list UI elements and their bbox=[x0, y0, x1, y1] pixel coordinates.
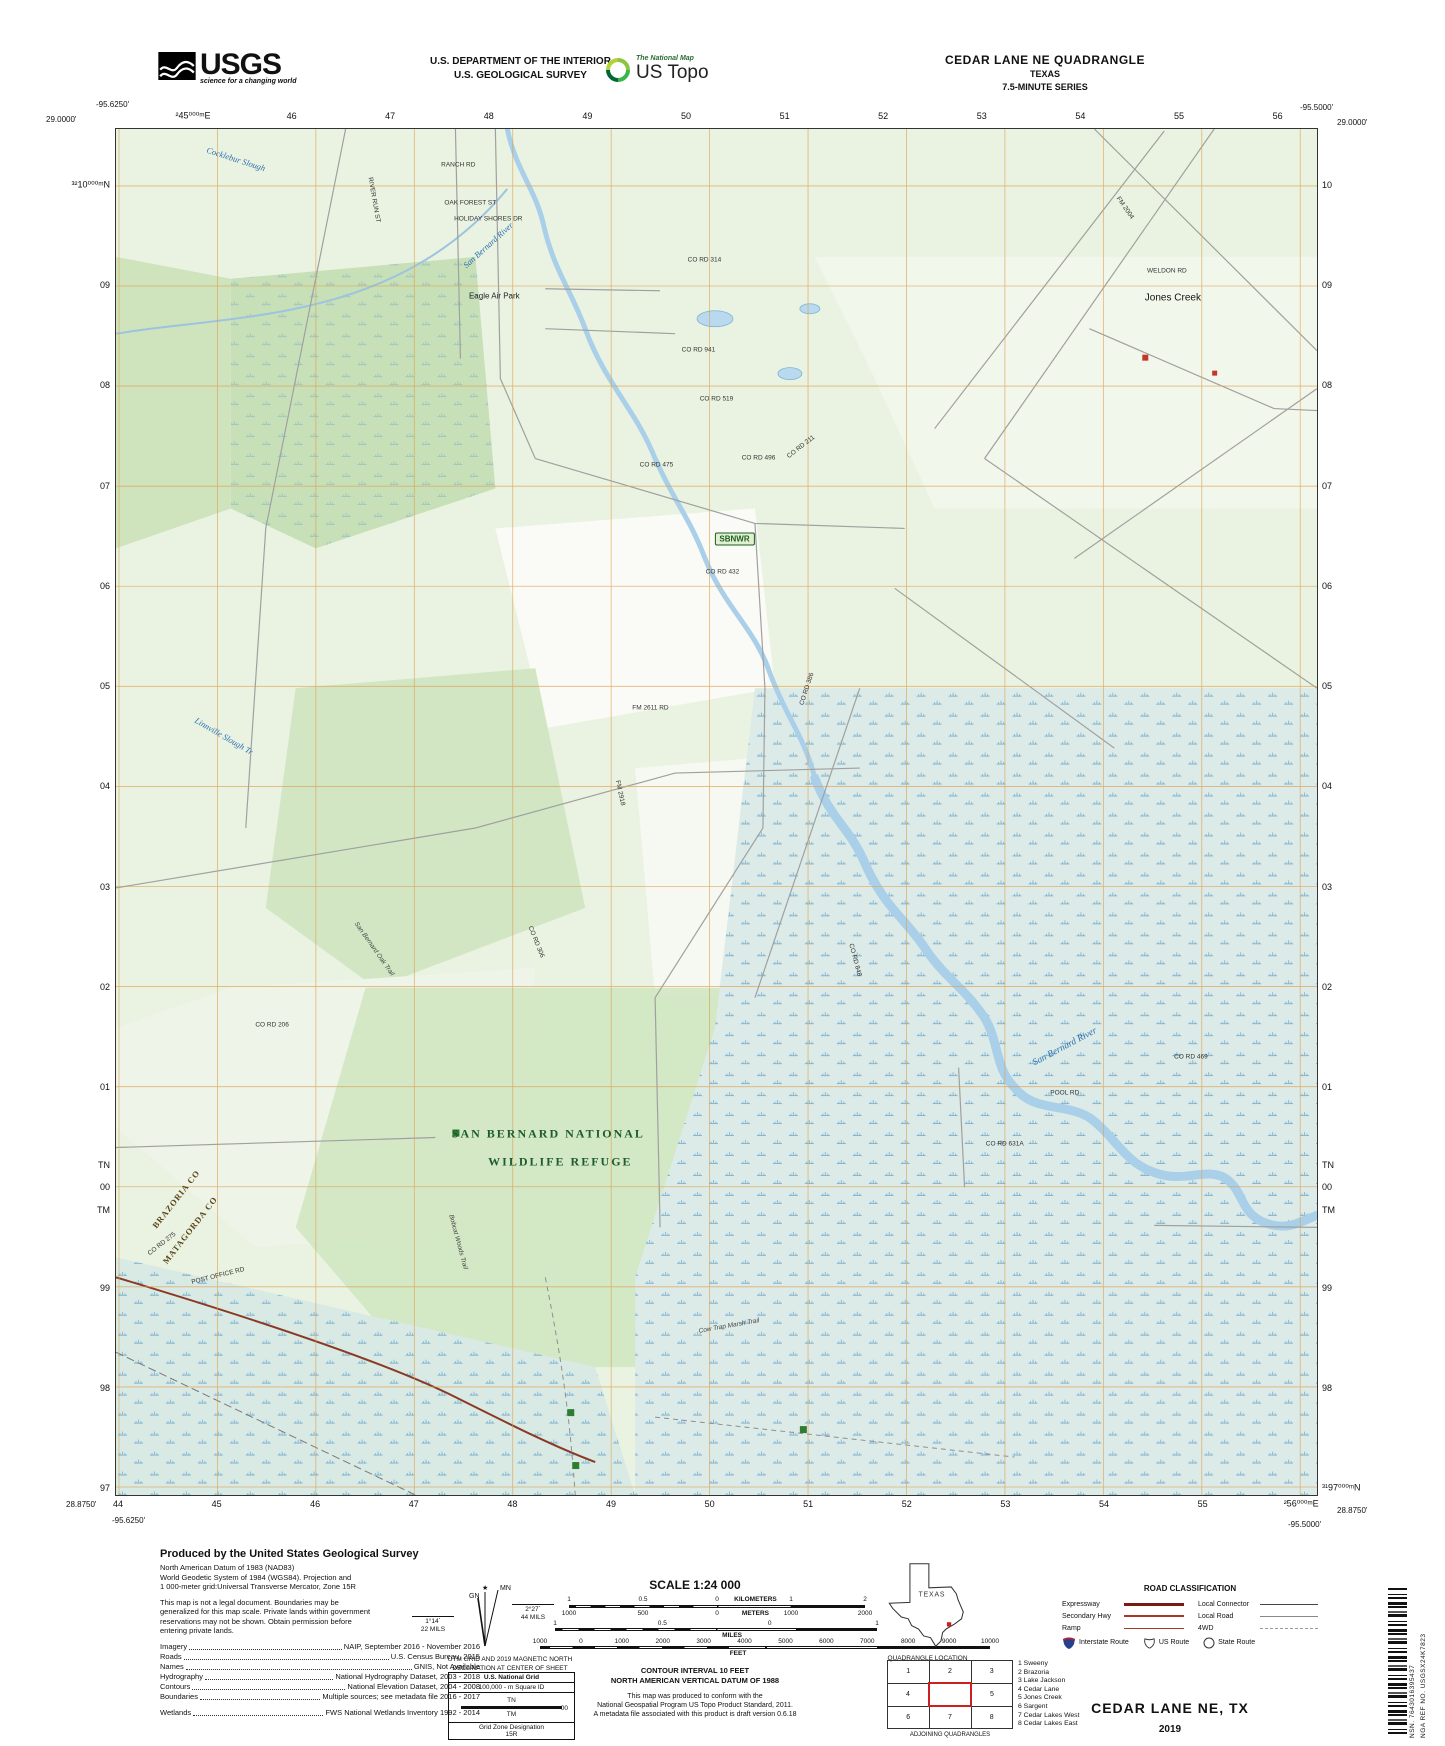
grid-coordinate-label: ²56⁰⁰⁰ᵐE bbox=[1284, 1499, 1319, 1510]
national-map-icon bbox=[605, 57, 631, 83]
map-label: FM 2918 bbox=[614, 780, 626, 807]
adj-cell: 8 bbox=[971, 1706, 1013, 1729]
source-row: BoundariesMultiple sources; see metadata… bbox=[160, 1692, 480, 1702]
map-label: Eagle Air Park bbox=[469, 291, 520, 300]
grid-coordinate-label: 06 bbox=[100, 581, 110, 591]
svg-text:★: ★ bbox=[482, 1584, 488, 1592]
adj-cell-center bbox=[929, 1683, 971, 1706]
usgs-topo-sheet: USGS science for a changing world U.S. D… bbox=[0, 0, 1445, 1746]
map-label: RANCH RD bbox=[441, 161, 475, 168]
sheet-title: CEDAR LANE NE, TX bbox=[1040, 1700, 1300, 1716]
map-label: Cocklebur Slough bbox=[205, 145, 266, 173]
usng-gzd: Grid Zone Designation15R bbox=[449, 1722, 574, 1739]
source-row: HydrographyNational Hydrography Dataset,… bbox=[160, 1672, 480, 1682]
corner-coord-tr-lon: -95.5000' bbox=[1300, 103, 1333, 112]
map-label: San Bernard Oak Trail bbox=[353, 920, 396, 977]
grid-coordinate-label: 51 bbox=[803, 1499, 813, 1509]
scale-tick: 0 bbox=[715, 1596, 719, 1603]
ramp-sample bbox=[1124, 1628, 1184, 1629]
scale-tick: 500 bbox=[638, 1610, 649, 1617]
grid-coordinate-label: 08 bbox=[100, 380, 110, 390]
scale-tick: 0.5 bbox=[638, 1596, 647, 1603]
map-label: CO RD 496 bbox=[742, 455, 776, 462]
grid-coordinate-label: 51 bbox=[780, 111, 790, 121]
mn-declination: 2°27´44 MILS bbox=[512, 1604, 554, 1622]
adj-cell: 7 bbox=[929, 1706, 971, 1729]
scale-tick: 0 bbox=[579, 1638, 583, 1645]
grid-coordinate-label: 56 bbox=[1273, 111, 1283, 121]
grid-coordinate-label: 05 bbox=[100, 681, 110, 691]
scale-tick: 3000 bbox=[696, 1638, 710, 1645]
dept-line2: U.S. GEOLOGICAL SURVEY bbox=[430, 69, 611, 83]
state-locator: TEXAS QUADRANGLE LOCATION bbox=[855, 1562, 1000, 1662]
grid-coordinate-label: 09 bbox=[1322, 280, 1332, 290]
map-label: SBNWR bbox=[714, 532, 754, 545]
expressway-sample bbox=[1124, 1603, 1184, 1606]
map-label: CO RD 469 bbox=[1174, 1053, 1208, 1060]
adj-cell: 3 bbox=[971, 1661, 1013, 1684]
grid-coordinate-label: 02 bbox=[100, 982, 110, 992]
grid-coordinate-label: 03 bbox=[100, 882, 110, 892]
grid-coordinate-label: 03 bbox=[1322, 882, 1332, 892]
grid-coordinate-label: 99 bbox=[1322, 1283, 1332, 1293]
scale-tick: 0 bbox=[768, 1620, 772, 1627]
map-label: San Bernard River bbox=[1031, 1026, 1098, 1068]
map-label: CO RD 314 bbox=[688, 257, 722, 264]
quad-title: CEDAR LANE NE QUADRANGLE bbox=[880, 53, 1210, 67]
nga-ref-number: NGA REF NO. USGSX24K7823 bbox=[1420, 1588, 1427, 1738]
map-labels-layer: Cocklebur SloughSan Bernard RiverEagle A… bbox=[116, 129, 1317, 1495]
road-classification-title: ROAD CLASSIFICATION bbox=[1060, 1584, 1320, 1593]
usgs-wordmark: USGS bbox=[200, 52, 296, 78]
barcode bbox=[1388, 1588, 1407, 1734]
datum-line: World Geodetic System of 1984 (WGS84). P… bbox=[160, 1573, 490, 1583]
source-row: ContoursNational Elevation Dataset, 2004… bbox=[160, 1682, 480, 1692]
grid-coordinate-label: 04 bbox=[100, 781, 110, 791]
grid-coordinate-label: 46 bbox=[287, 111, 297, 121]
scalebar-kilometers: 10.5012 KILOMETERS 1000500010002000 METE… bbox=[569, 1596, 865, 1622]
grid-coordinate-label: 01 bbox=[1322, 1082, 1332, 1092]
adj-cell: 6 bbox=[888, 1706, 930, 1729]
road-classification: Expressway Local Connector Secondary Hwy… bbox=[1062, 1598, 1324, 1634]
grid-coordinate-label: 50 bbox=[705, 1499, 715, 1509]
scale-tick: 4000 bbox=[737, 1638, 751, 1645]
dept-line1: U.S. DEPARTMENT OF THE INTERIOR bbox=[430, 55, 611, 69]
map-label: OAK FOREST ST bbox=[444, 199, 496, 206]
ustopo-logo: The National Map US Topo bbox=[605, 55, 709, 84]
map-label: HOLIDAY SHORES DR bbox=[454, 216, 522, 223]
adjoining-names: 1 Sweeny 2 Brazoria 3 Lake Jackson 4 Ced… bbox=[1018, 1660, 1079, 1729]
local-road-sample bbox=[1260, 1616, 1318, 1617]
scale-tick: 1000 bbox=[533, 1638, 547, 1645]
grid-coordinate-label: 10 bbox=[1322, 180, 1332, 190]
grid-coordinate-label: 46 bbox=[310, 1499, 320, 1509]
declination-diagram: ★ MN GN 1°14´22 MILS 2°27´44 MILS bbox=[420, 1582, 550, 1654]
usgs-logo: USGS science for a changing world bbox=[158, 52, 296, 85]
grid-coordinate-label: 98 bbox=[100, 1383, 110, 1393]
department-heading: U.S. DEPARTMENT OF THE INTERIOR U.S. GEO… bbox=[430, 55, 611, 83]
map-label: San Bernard River bbox=[461, 220, 515, 270]
scale-tick: 1000 bbox=[562, 1610, 576, 1617]
scale-tick: 0 bbox=[715, 1610, 719, 1617]
grid-coordinate-label: 02 bbox=[1322, 982, 1332, 992]
grid-coordinate-label: 45 bbox=[212, 1499, 222, 1509]
ustopo-label: US Topo bbox=[636, 62, 709, 84]
corner-coord-tl-lon: -95.6250' bbox=[96, 100, 129, 109]
us-route-shield-icon bbox=[1143, 1637, 1156, 1649]
grid-coordinate-label: 99 bbox=[100, 1283, 110, 1293]
state-route-icon bbox=[1203, 1637, 1215, 1649]
interstate-shield-icon bbox=[1062, 1636, 1076, 1649]
scale-tick: 1 bbox=[789, 1596, 793, 1603]
grid-coordinate-label: ³¹97⁰⁰⁰ᵐN bbox=[1322, 1482, 1360, 1493]
corner-coord-br-lat: 28.8750' bbox=[1337, 1506, 1367, 1515]
map-label: CO RD 306 bbox=[527, 925, 546, 959]
adj-cell: 5 bbox=[971, 1683, 1013, 1706]
grid-coordinate-label: 00 bbox=[100, 1182, 110, 1192]
grid-coordinate-label: 55 bbox=[1174, 111, 1184, 121]
scale-tick: 0.5 bbox=[658, 1620, 667, 1627]
grid-coordinate-label: 48 bbox=[507, 1499, 517, 1509]
grid-coordinate-label: 07 bbox=[1322, 481, 1332, 491]
map-label: CO RD 211 bbox=[785, 434, 815, 460]
scale-tick: 1000 bbox=[784, 1610, 798, 1617]
scale-title: SCALE 1:24 000 bbox=[560, 1578, 830, 1592]
svg-text:GN: GN bbox=[469, 1593, 480, 1600]
adj-cell: 4 bbox=[888, 1683, 930, 1706]
svg-text:TEXAS: TEXAS bbox=[918, 1591, 945, 1598]
produced-by: Produced by the United States Geological… bbox=[160, 1548, 490, 1560]
corner-coord-tr-lat: 29.0000' bbox=[1337, 118, 1367, 127]
grid-coordinate-label: 05 bbox=[1322, 681, 1332, 691]
quad-location-marker bbox=[946, 1622, 950, 1626]
grid-coordinate-label: 54 bbox=[1099, 1499, 1109, 1509]
datum-line: North American Datum of 1983 (NAD83) bbox=[160, 1563, 490, 1573]
map-label: WELDON RD bbox=[1147, 268, 1187, 275]
grid-coordinate-label: 09 bbox=[100, 280, 110, 290]
fourwd-sample bbox=[1260, 1628, 1318, 1629]
map-label: RIVER RUN ST bbox=[367, 177, 382, 223]
grid-coordinate-label: ²45⁰⁰⁰ᵐE bbox=[176, 111, 211, 122]
map-label: CO RD 848 bbox=[847, 942, 862, 976]
map-area[interactable]: Cocklebur SloughSan Bernard RiverEagle A… bbox=[115, 128, 1318, 1496]
grid-coordinate-label: 47 bbox=[385, 111, 395, 121]
map-label: CO RD 631A bbox=[986, 1140, 1024, 1147]
sheet-year: 2019 bbox=[1040, 1724, 1300, 1735]
grid-coordinate-label: ³²10⁰⁰⁰ᵐN bbox=[72, 180, 110, 191]
grid-coordinate-label: 08 bbox=[1322, 380, 1332, 390]
grid-coordinate-label: 01 bbox=[100, 1082, 110, 1092]
grid-coordinate-label: 50 bbox=[681, 111, 691, 121]
source-row: WetlandsFWS National Wetlands Inventory … bbox=[160, 1708, 480, 1718]
corner-coord-bl-lon: -95.6250' bbox=[112, 1516, 145, 1525]
secondary-hwy-sample bbox=[1124, 1615, 1184, 1617]
map-label: CO RD 475 bbox=[640, 462, 674, 469]
corner-coord-tl-lat: 29.0000' bbox=[46, 115, 76, 124]
grid-coordinate-label: 98 bbox=[1322, 1383, 1332, 1393]
scale-tick: 1 bbox=[567, 1596, 571, 1603]
grid-coordinate-label: 53 bbox=[977, 111, 987, 121]
grid-coordinate-label: 07 bbox=[100, 481, 110, 491]
scale-tick: 1 bbox=[553, 1620, 557, 1627]
quadrangle-heading: CEDAR LANE NE QUADRANGLE TEXAS 7.5-MINUT… bbox=[880, 53, 1210, 92]
map-label: Linnville Slough Tr bbox=[193, 715, 255, 756]
grid-coordinate-label: 06 bbox=[1322, 581, 1332, 591]
scale-tick: 6000 bbox=[819, 1638, 833, 1645]
grid-coordinate-label: 52 bbox=[902, 1499, 912, 1509]
contour-note: CONTOUR INTERVAL 10 FEET NORTH AMERICAN … bbox=[520, 1666, 870, 1686]
usgs-wave-icon bbox=[158, 52, 196, 80]
national-map-label: The National Map bbox=[636, 55, 709, 62]
map-label: SAN BERNARD NATIONAL bbox=[452, 1127, 645, 1142]
grid-coordinate-label: TM bbox=[97, 1205, 110, 1215]
quad-state: TEXAS bbox=[880, 69, 1210, 79]
corner-coord-bl-lat: 28.8750' bbox=[66, 1500, 96, 1509]
grid-coordinate-label: 53 bbox=[1000, 1499, 1010, 1509]
map-label: CO RD 519 bbox=[700, 396, 734, 403]
scale-tick: 1000 bbox=[615, 1638, 629, 1645]
map-label: CO RD 941 bbox=[682, 347, 716, 354]
grid-coordinate-label: TN bbox=[98, 1160, 110, 1170]
map-label: Jones Creek bbox=[1145, 293, 1201, 304]
route-shields: Interstate Route US Route State Route bbox=[1062, 1636, 1332, 1649]
gn-declination: 1°14´22 MILS bbox=[412, 1616, 454, 1634]
nsn-number: NSN. 7643016395437 bbox=[1409, 1588, 1416, 1738]
grid-coordinate-label: 49 bbox=[582, 111, 592, 121]
grid-coordinate-label: TM bbox=[1322, 1205, 1335, 1215]
adj-cell: 1 bbox=[888, 1661, 930, 1684]
grid-coordinate-label: 49 bbox=[606, 1499, 616, 1509]
adj-cell: 2 bbox=[929, 1661, 971, 1684]
local-connector-sample bbox=[1260, 1604, 1318, 1605]
map-label: Bobcat Woods Trail bbox=[448, 1214, 469, 1270]
scale-tick: 2000 bbox=[655, 1638, 669, 1645]
grid-coordinate-label: 04 bbox=[1322, 781, 1332, 791]
grid-coordinate-label: 47 bbox=[409, 1499, 419, 1509]
map-label: FM 2611 RD bbox=[632, 705, 668, 712]
adjoining-quadrangles: 1 2 3 4 5 6 7 8 ADJOINING QUADRANGLES bbox=[887, 1660, 1013, 1738]
standard-note: This map was produced to conform with th… bbox=[490, 1692, 900, 1719]
usgs-tagline: science for a changing world bbox=[200, 78, 296, 85]
map-label: FM 2004 bbox=[1115, 196, 1135, 221]
scale-tick: 5000 bbox=[778, 1638, 792, 1645]
adjoining-caption: ADJOINING QUADRANGLES bbox=[887, 1732, 1013, 1738]
grid-coordinate-label: 54 bbox=[1075, 111, 1085, 121]
quad-series: 7.5-MINUTE SERIES bbox=[880, 82, 1210, 92]
svg-text:MN: MN bbox=[500, 1585, 511, 1592]
map-label: CO RD 206 bbox=[255, 1022, 289, 1029]
map-label: POOL RD bbox=[1050, 1090, 1079, 1097]
corner-coord-br-lon: -95.5000' bbox=[1288, 1520, 1321, 1529]
grid-coordinate-label: TN bbox=[1322, 1160, 1334, 1170]
grid-coordinate-label: 00 bbox=[1322, 1182, 1332, 1192]
map-label: Cow Trap Marsh Trail bbox=[698, 1317, 760, 1335]
grid-coordinate-label: 48 bbox=[484, 111, 494, 121]
grid-coordinate-label: 55 bbox=[1198, 1499, 1208, 1509]
grid-coordinate-label: 97 bbox=[100, 1483, 110, 1493]
map-label: WILDLIFE REFUGE bbox=[488, 1154, 632, 1169]
map-label: POST OFFICE RD bbox=[191, 1266, 245, 1286]
map-label: CO RD 432 bbox=[706, 568, 740, 575]
grid-coordinate-label: 52 bbox=[878, 111, 888, 121]
texas-outline: TEXAS bbox=[868, 1562, 988, 1648]
map-label: CO RD 386 bbox=[798, 672, 815, 706]
grid-coordinate-label: 44 bbox=[113, 1499, 123, 1509]
